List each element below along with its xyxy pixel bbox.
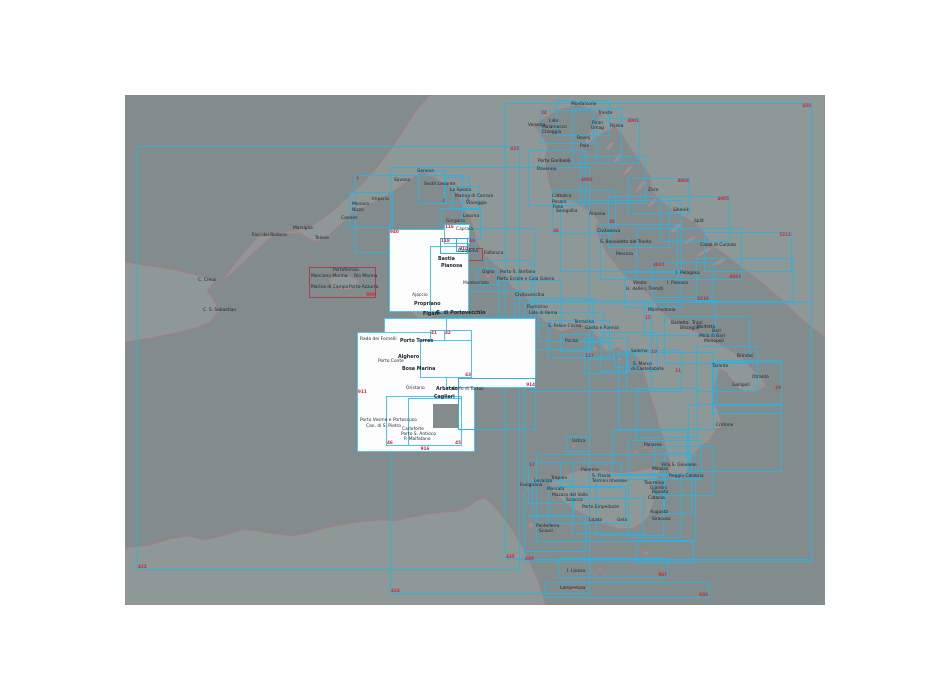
place-label: Salerno	[631, 350, 648, 354]
chart-number: 36	[553, 229, 559, 233]
chart-number: 12	[645, 316, 651, 320]
place-label: Fiumicino	[527, 306, 548, 310]
chart-box[interactable]	[704, 232, 792, 272]
place-label: Gaeta e Formia	[585, 327, 619, 331]
place-label: Favignana	[520, 484, 542, 488]
place-label: Scauri	[539, 530, 553, 534]
chart-number: 127	[585, 354, 594, 358]
place-label: Pianosa	[441, 265, 462, 270]
place-label: Ravenna	[537, 168, 556, 172]
chart-number: 46	[387, 441, 393, 445]
place-label: Porto Torres	[400, 340, 433, 345]
place-label: S. Felice Circeo	[548, 325, 581, 329]
place-label: Milazzo	[652, 468, 668, 472]
place-label: Capraia	[456, 228, 473, 232]
place-label: Tolone	[315, 237, 329, 241]
chart-box[interactable]	[458, 378, 536, 430]
place-label: Trapani	[551, 477, 567, 481]
place-label: Giglio	[482, 271, 495, 275]
place-label: Can. di S. Pietro	[366, 425, 401, 429]
chart-number: 10	[651, 350, 657, 354]
chart-number: 43	[465, 373, 471, 377]
place-label: Trieste	[598, 112, 612, 116]
place-label: Porto Conte	[378, 360, 404, 364]
place-label: Porto Garibaldi	[538, 160, 571, 164]
chart-number: 11	[675, 369, 681, 373]
place-label: Livorno	[463, 215, 479, 219]
chart-number: 4017	[653, 263, 665, 267]
chart-number: 916	[421, 447, 430, 451]
place-label: Senigallia	[556, 210, 577, 214]
place-label: Viareggio	[466, 202, 487, 206]
place-label: Marina di Campo	[311, 286, 348, 290]
place-label: Gorgona	[446, 220, 465, 224]
chart-number: 909	[366, 293, 375, 297]
place-label: Ancona	[589, 213, 605, 217]
chart-number: 434	[391, 589, 400, 593]
chart-number: 1	[356, 176, 359, 180]
chart-number: 17	[529, 463, 535, 467]
place-label: Ajaccio	[412, 294, 428, 298]
place-label: Levanzo	[534, 480, 552, 484]
chart-gap	[433, 404, 458, 428]
place-label: Montecristo	[463, 282, 489, 286]
place-label: Gallipoli	[732, 384, 750, 388]
place-label: Sibenik	[673, 209, 689, 213]
place-label: Cagliari	[434, 396, 455, 401]
place-label: Portoferraio	[333, 269, 359, 273]
place-label: Chioggia	[542, 131, 561, 135]
chart-box[interactable]	[524, 516, 586, 552]
place-label: Is. delle I. Tremiti	[626, 288, 663, 292]
place-label: Sciacca	[566, 499, 583, 503]
place-label: Bosa Marina	[402, 368, 435, 373]
place-label: Gela	[617, 519, 627, 523]
place-label: C. Creus	[198, 279, 216, 283]
place-label: Licata	[589, 519, 602, 523]
place-label: Palermo	[581, 469, 599, 473]
chart-number: 5212	[779, 233, 791, 237]
chart-number: 936	[699, 593, 708, 597]
place-label: Zara	[648, 189, 658, 193]
place-label: Rada dei Fornelli	[360, 338, 397, 342]
place-label: Reggio Calabria	[669, 475, 704, 479]
place-label: Vieste	[633, 282, 647, 286]
place-label: Nizza	[352, 209, 364, 213]
chart-number: 40	[469, 239, 475, 243]
place-label: Marina di Carrara	[455, 195, 493, 199]
place-label: Brindisi	[737, 355, 753, 359]
chart-number: 435	[506, 555, 515, 559]
place-label: Civitavecchia	[515, 294, 544, 298]
place-label: Imperia	[372, 198, 389, 202]
place-label: Monopoli	[704, 340, 724, 344]
place-label: Sestri Levante	[424, 183, 455, 187]
place-label: Marsala	[547, 488, 564, 492]
chart-number: 940	[390, 230, 399, 234]
place-label: Lampedusa	[560, 587, 585, 591]
place-label: Crotone	[716, 424, 733, 428]
place-label: Monaco	[352, 203, 369, 207]
place-label: Ponza	[565, 340, 578, 344]
place-label: Riposto	[652, 491, 668, 495]
place-label: Porto Empedocle	[582, 506, 619, 510]
place-label: Marsiglia	[293, 227, 313, 231]
place-label: Augusta	[650, 511, 668, 515]
place-label: Civitanova	[597, 230, 620, 234]
chart-number: 116	[445, 225, 454, 229]
place-label: Savona	[394, 179, 410, 183]
chart-number: 4004	[677, 179, 689, 183]
chart-box[interactable]	[688, 404, 782, 472]
chart-number: 4002	[581, 178, 593, 182]
chart-number: 435	[802, 104, 811, 108]
place-label: di Castellabate	[631, 368, 664, 372]
chart-number: 2	[442, 199, 445, 203]
place-label: Porto Azzurro	[349, 286, 378, 290]
chart-number: 41	[431, 331, 437, 335]
place-label: Otranto	[752, 376, 769, 380]
chart-number: 35	[609, 220, 615, 224]
place-label: Genova	[417, 170, 434, 174]
place-label: S. Benedetto del Tronto	[600, 241, 652, 245]
chart-number: 4005	[717, 197, 729, 201]
place-label: Taranto	[712, 365, 728, 369]
place-label: Cattolica	[552, 195, 571, 199]
place-label: I. Linosa	[567, 570, 585, 574]
place-label: I. Pelagosa	[676, 272, 700, 276]
place-label: Pola	[580, 145, 589, 149]
place-label: Rijeka	[610, 125, 623, 129]
place-label: Propriano	[414, 303, 441, 308]
place-label: G. di Portovecchio	[436, 312, 485, 317]
chart-box[interactable]	[636, 540, 694, 564]
chart-number: 911	[358, 390, 367, 394]
chart-number: 947	[658, 573, 667, 577]
place-label: Split	[694, 220, 704, 224]
place-label: Terracina	[574, 321, 594, 325]
place-label: Ustica	[572, 440, 586, 444]
place-label: Follonica	[484, 252, 503, 256]
nautical-chart-index-map: 4324324344354354399479361231271011172812…	[125, 95, 825, 605]
place-label: La Spezia	[450, 189, 471, 193]
place-label: Rio Marina	[354, 275, 377, 279]
chart-number: 45	[455, 441, 461, 445]
place-label: Porto Vesme e Portoscuso	[360, 419, 417, 423]
place-label: C. S. Sebastian	[203, 309, 236, 313]
chart-number: 34	[541, 111, 547, 115]
place-label: Umag	[591, 127, 604, 131]
chart-number: 4001	[627, 119, 639, 123]
place-label: Villa S. Giovanni	[661, 464, 697, 468]
chart-number: 432	[138, 565, 147, 569]
place-label: Porto S. Stefano	[500, 271, 535, 275]
chart-number: 118	[441, 239, 450, 243]
place-label: I. Pianosa	[667, 282, 688, 286]
chart-number: 4043	[729, 275, 741, 279]
place-label: P. Malfatano	[404, 438, 431, 442]
chart-number: 439	[525, 557, 534, 561]
place-label: Foci del Rodano	[252, 234, 287, 238]
chart-number: 914	[526, 383, 535, 387]
place-label: Lido di Roma	[529, 312, 557, 316]
place-label: Manfredonia	[648, 309, 675, 313]
chart-number: 5210	[697, 297, 709, 301]
chart-number: 432	[510, 147, 519, 151]
place-label: Termini Imerese	[592, 480, 627, 484]
place-label: Cannes	[341, 217, 357, 221]
place-label: Golfo di Tortoli	[452, 388, 484, 392]
place-label: Lido	[549, 120, 558, 124]
place-label: Siracusa	[652, 518, 671, 522]
place-label: Piombino	[458, 250, 478, 254]
place-label: Oristano	[406, 387, 425, 391]
place-label: Monfalcone	[571, 103, 596, 107]
place-label: Marciana Marina	[311, 275, 347, 279]
place-label: Canal di Curzola	[700, 244, 736, 248]
place-label: Panarea	[644, 444, 662, 448]
place-label: Catania	[648, 497, 665, 501]
place-label: Pescara	[616, 253, 633, 257]
chart-number: 42	[445, 331, 451, 335]
chart-catalog-screenshot: { "map": { "x": 125, "y": 95, "w": 700, …	[0, 0, 950, 700]
place-label: Porto Ercole e Cala Galera	[497, 278, 554, 282]
chart-number: 28	[775, 386, 781, 390]
place-label: Rovinj	[577, 137, 590, 141]
place-label: Bastia	[438, 258, 455, 263]
